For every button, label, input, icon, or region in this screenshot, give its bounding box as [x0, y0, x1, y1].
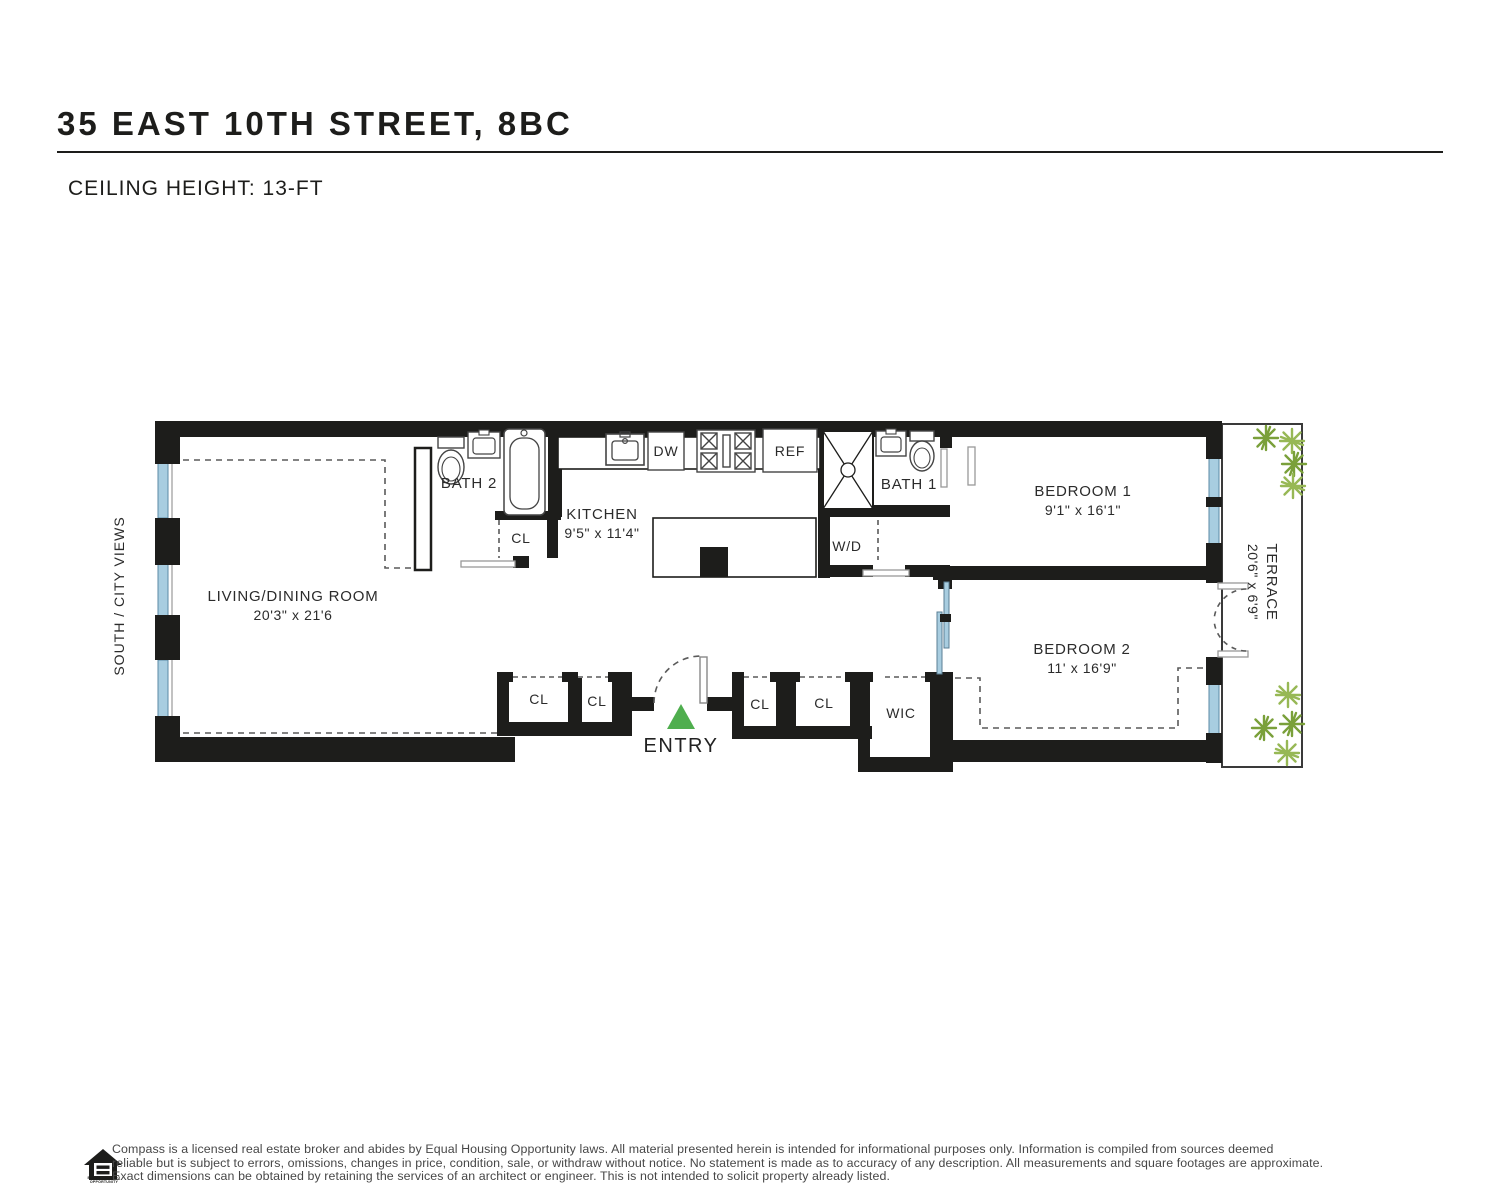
disclaimer-line: Compass is a licensed real estate broker…: [112, 1143, 1442, 1157]
kitchen-label: KITCHEN 9'5" x 11'4": [564, 506, 639, 542]
stove-icon: [697, 430, 755, 472]
wd-area-door-leaf: [863, 570, 909, 576]
bath1-fixtures: [876, 429, 934, 471]
dishwasher-label: DW: [654, 442, 679, 460]
bath2-door-leaf: [461, 561, 515, 567]
bath1-door-leaf: [941, 449, 947, 487]
terrace-label: TERRACE 20'6" x 6'9": [1244, 543, 1280, 620]
closet-label: CL: [587, 692, 607, 710]
closet-label: CL: [529, 690, 549, 708]
closet-label: CL: [750, 695, 770, 713]
kitchen-island: [653, 518, 816, 577]
entry-label: ENTRY: [644, 737, 719, 755]
floorplan-page: 35 EAST 10TH STREET, 8BC CEILING HEIGHT:…: [0, 0, 1500, 1189]
kitchen-sink-icon: [606, 432, 644, 465]
entry-door-leaf: [700, 657, 707, 703]
bedroom1-label: BEDROOM 1 9'1" x 16'1": [1034, 483, 1131, 519]
bath1-label: BATH 1: [881, 476, 937, 494]
closet-label: CL: [511, 529, 531, 547]
sink-icon: [876, 429, 906, 456]
bath2-label: BATH 2: [441, 475, 497, 493]
disclaimer-line: reliable but is subject to errors, omiss…: [112, 1157, 1442, 1171]
bath2-fixtures: [438, 429, 545, 515]
entry-door-swing: [654, 656, 701, 703]
shower-icon: [823, 431, 873, 509]
toilet-icon: [910, 431, 934, 471]
bathtub-icon: [504, 429, 545, 515]
washer-dryer-label: W/D: [832, 537, 862, 555]
orientation-label: SOUTH / CITY VIEWS: [110, 516, 128, 675]
bedroom2-sliding-door: [937, 582, 951, 674]
bedroom2-label: BEDROOM 2 11' x 16'9": [1033, 641, 1130, 677]
bedroom1-door-leaf: [968, 447, 975, 485]
living-room-partition: [415, 448, 431, 570]
living-room-label: LIVING/DINING ROOM 20'3" x 21'6: [207, 588, 378, 624]
closet-label: CL: [814, 694, 834, 712]
wic-label: WIC: [886, 704, 916, 722]
disclaimer-line: Exact dimensions can be obtained by reta…: [112, 1170, 1442, 1184]
sink-icon: [468, 430, 500, 458]
entry-marker-icon: [667, 704, 695, 729]
disclaimer: Compass is a licensed real estate broker…: [112, 1143, 1442, 1184]
refrigerator-label: REF: [775, 442, 805, 460]
